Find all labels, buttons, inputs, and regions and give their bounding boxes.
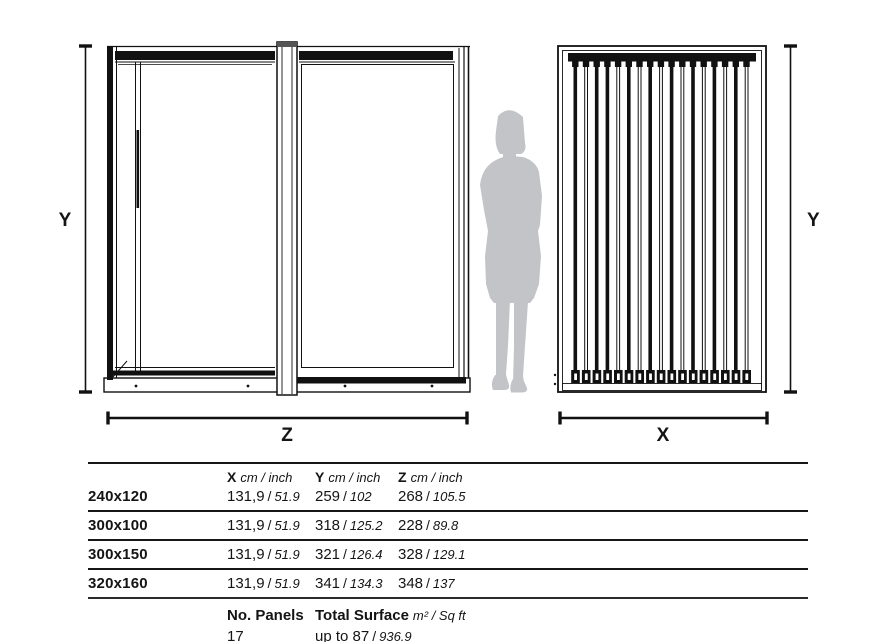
y-dimension-label-right: Y <box>807 210 820 231</box>
y-value-cell: 318/125.2 <box>315 512 382 539</box>
z-dimension-label: Z <box>281 425 293 446</box>
col-z-label: Z <box>398 469 407 485</box>
table-row: 320x160 131,9/51.9 341/134.3 348/137 <box>88 570 808 597</box>
col-x-label: X <box>227 469 236 485</box>
surface-unit: m² / Sq ft <box>413 608 466 623</box>
x-value-cell: 131,9/51.9 <box>227 486 300 507</box>
table-row: 300x100 131,9/51.9 318/125.2 228/89.8 <box>88 512 808 539</box>
surface-label-cell: Total Surfacem² / Sq ft <box>315 605 466 626</box>
y-value-cell: 341/134.3 <box>315 570 382 597</box>
y-dimension-label-left: Y <box>59 210 72 231</box>
table-section-320x160: 320x160 131,9/51.9 341/134.3 348/137 <box>88 570 808 599</box>
z-value-cell: 348/137 <box>398 570 455 597</box>
table-section-300x100: 300x100 131,9/51.9 318/125.2 228/89.8 <box>88 512 808 541</box>
x-value-cell: 131,9/51.9 <box>227 541 300 568</box>
col-z-unit: cm / inch <box>411 470 463 485</box>
side-view-drawing <box>554 46 766 392</box>
footer-labels-row: No. Panels Total Surfacem² / Sq ft <box>88 605 808 626</box>
col-y-label: Y <box>315 469 324 485</box>
size-cell: 320x160 <box>88 570 148 597</box>
z-value-cell: 328/129.1 <box>398 541 465 568</box>
surface-value-cell: up to 87/936.9 <box>315 626 412 642</box>
human-silhouette <box>480 110 542 392</box>
x-value-cell: 131,9/51.9 <box>227 570 300 597</box>
size-cell: 300x150 <box>88 541 148 568</box>
col-y-unit: cm / inch <box>328 470 380 485</box>
z-value-cell: 228/89.8 <box>398 512 458 539</box>
x-dimension-label: X <box>657 425 670 446</box>
table-footer: No. Panels Total Surfacem² / Sq ft 17 up… <box>88 599 808 642</box>
x-dimension: X <box>560 412 767 447</box>
footer-values-row: 17 up to 87/936.9 <box>88 626 808 642</box>
technical-drawing: Y Z X Y <box>0 0 883 460</box>
table-section-240x120: Xcm / inch Ycm / inch Zcm / inch 240x120… <box>88 464 808 512</box>
x-value-cell: 131,9/51.9 <box>227 512 300 539</box>
y-value-cell: 259/102 <box>315 486 372 507</box>
surface-label: Total Surface <box>315 607 409 624</box>
dimensions-table: Xcm / inch Ycm / inch Zcm / inch 240x120… <box>88 462 808 642</box>
panels-value: 17 <box>227 626 244 642</box>
central-post <box>277 42 297 395</box>
table-section-300x150: 300x150 131,9/51.9 321/126.4 328/129.1 <box>88 541 808 570</box>
bottom-rail <box>563 384 762 391</box>
col-x-unit: cm / inch <box>240 470 292 485</box>
z-value-cell: 268/105.5 <box>398 486 465 507</box>
y-value-cell: 321/126.4 <box>315 541 382 568</box>
table-header-row: Xcm / inch Ycm / inch Zcm / inch <box>88 464 808 486</box>
front-view-drawing <box>104 42 470 395</box>
panels-label: No. Panels <box>227 605 304 626</box>
table-row: 240x120 131,9/51.9 259/102 268/105.5 <box>88 486 808 510</box>
size-cell: 300x100 <box>88 512 148 539</box>
silhouette-foot <box>492 375 509 390</box>
y-dimension-left: Y <box>59 46 92 392</box>
silhouette-foot <box>510 379 527 393</box>
table-row: 300x150 131,9/51.9 321/126.4 328/129.1 <box>88 541 808 568</box>
silhouette-body <box>480 156 542 303</box>
size-cell: 240x120 <box>88 486 148 507</box>
y-dimension-right: Y <box>784 46 820 392</box>
spec-sheet-page: Y Z X Y <box>0 0 883 642</box>
z-dimension: Z <box>108 412 467 447</box>
